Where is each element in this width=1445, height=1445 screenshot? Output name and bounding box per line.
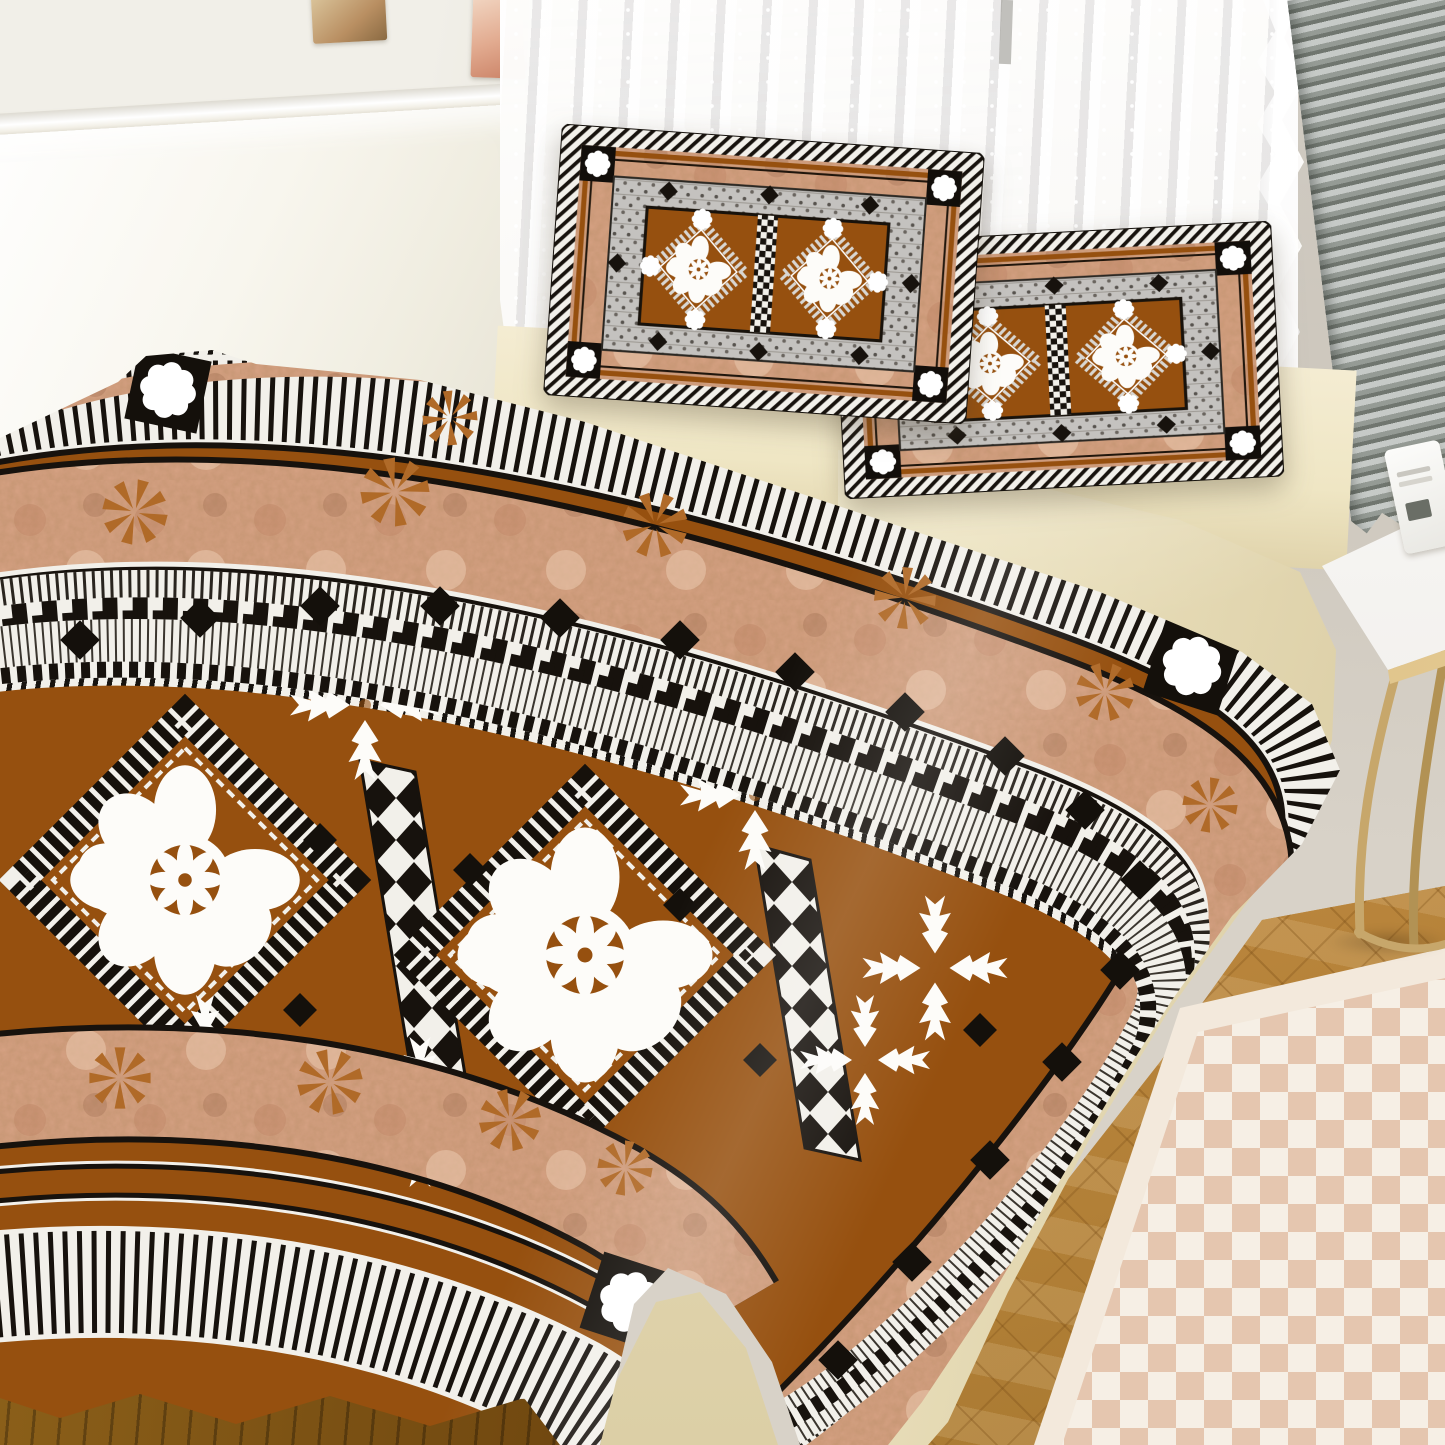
- pillow-left: [543, 124, 985, 425]
- curtain-gap: [999, 0, 1013, 64]
- wall-card-1: [311, 0, 388, 44]
- bedroom-scene: [0, 0, 1445, 1445]
- decor-detail-mark: [1405, 499, 1432, 522]
- decor-detail-lines: [1396, 466, 1430, 478]
